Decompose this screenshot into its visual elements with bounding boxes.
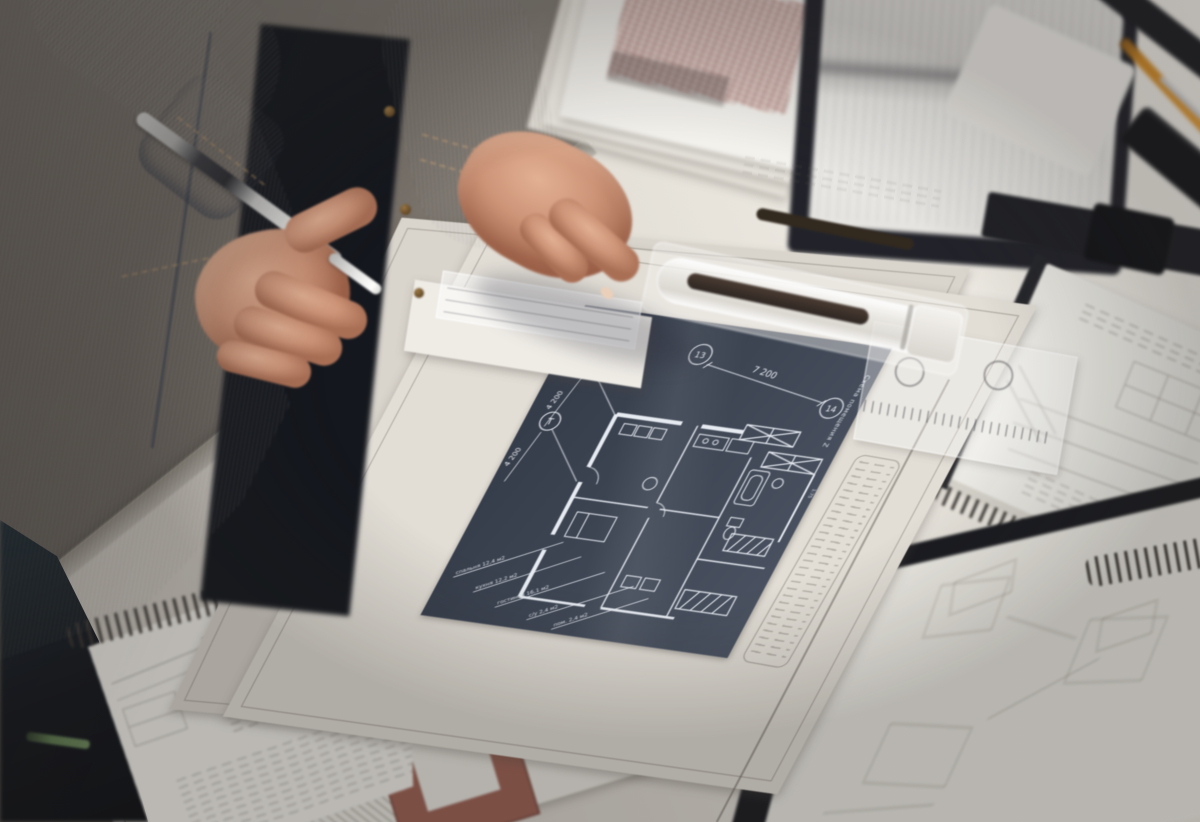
ruler-hole [981,358,1016,393]
room-label: пом. 2,4 м2 [553,612,588,628]
dimension-text-left-upper: 4 200 [544,389,566,410]
door-arc [581,467,605,484]
cube-sketch [862,723,972,788]
pencil-table-sketch [1115,361,1200,450]
sketch-stroke [823,804,934,814]
brass-button [414,288,424,298]
room-label: спальня 12,4 м2 [456,556,506,577]
tube-cap [905,304,965,365]
brass-button [400,204,411,215]
brass-button [384,106,395,117]
form-line [129,709,180,728]
sketch-stroke [987,658,1099,720]
sketch-stroke [1006,616,1076,639]
photo-architect-desk: MARTYNOV С Т 13 14 [0,0,1200,822]
axis-bubble-label: 14 [824,404,839,415]
ruler-ticks [863,400,1052,445]
furniture [543,424,801,601]
dimension-text-top: 7 200 [749,365,779,382]
room-label: кухня 12,2 м2 [475,573,517,591]
axis-bubble-label: Т [543,417,555,428]
